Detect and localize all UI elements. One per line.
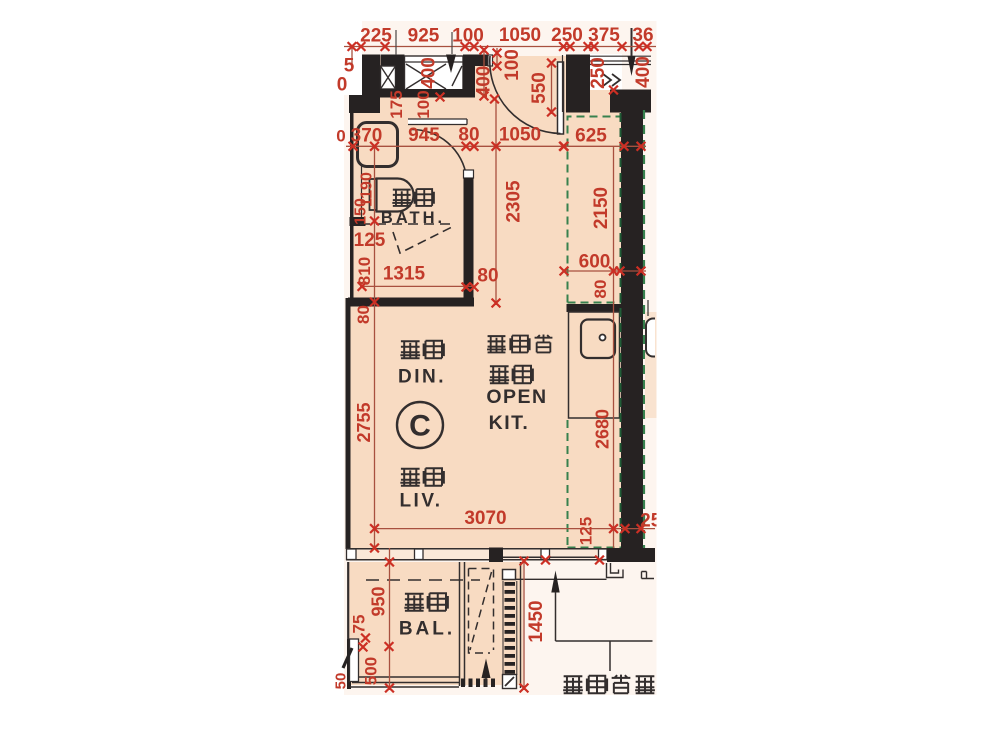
svg-text:2755: 2755 (354, 402, 374, 442)
svg-text:250: 250 (551, 25, 583, 46)
svg-text:C: C (409, 410, 431, 443)
svg-text:3070: 3070 (464, 508, 506, 529)
svg-text:75: 75 (350, 615, 369, 634)
svg-text:0: 0 (336, 127, 345, 146)
svg-text:945: 945 (408, 125, 440, 146)
svg-text:250: 250 (588, 57, 609, 89)
svg-text:BAL.: BAL. (399, 619, 455, 640)
svg-text:100: 100 (502, 49, 523, 81)
svg-text:1315: 1315 (383, 264, 426, 285)
svg-text:100: 100 (452, 26, 484, 47)
svg-text:950: 950 (369, 586, 389, 616)
svg-text:80: 80 (458, 125, 479, 146)
svg-text:2150: 2150 (591, 187, 612, 229)
svg-text:810: 810 (355, 257, 374, 285)
svg-text:80: 80 (591, 280, 610, 299)
svg-text:80: 80 (354, 305, 373, 324)
svg-text:375: 375 (588, 25, 620, 46)
svg-text:DIN.: DIN. (398, 367, 446, 388)
svg-text:600: 600 (579, 252, 611, 273)
svg-text:LIV.: LIV. (399, 491, 442, 512)
svg-text:5: 5 (344, 56, 355, 77)
svg-text:400: 400 (474, 66, 495, 98)
svg-text:2305: 2305 (504, 180, 525, 223)
svg-text:150: 150 (353, 198, 370, 225)
svg-text:2680: 2680 (593, 409, 613, 449)
svg-text:KIT.: KIT. (489, 412, 530, 434)
svg-text:400: 400 (633, 56, 654, 88)
svg-text:0: 0 (337, 75, 348, 96)
svg-text:1050: 1050 (499, 125, 541, 146)
svg-text:BATH.: BATH. (381, 209, 445, 227)
svg-text:100: 100 (414, 90, 433, 118)
svg-text:370: 370 (351, 126, 383, 147)
svg-text:OPEN: OPEN (486, 386, 547, 408)
svg-text:36: 36 (632, 25, 653, 46)
svg-text:400: 400 (419, 57, 440, 89)
svg-text:125: 125 (577, 517, 596, 545)
svg-text:225: 225 (360, 26, 392, 47)
svg-text:1450: 1450 (526, 600, 547, 642)
svg-text:1050: 1050 (499, 25, 541, 46)
svg-text:550: 550 (529, 72, 550, 104)
svg-text:50: 50 (333, 673, 350, 690)
svg-text:175: 175 (387, 90, 406, 118)
svg-text:925: 925 (408, 26, 440, 47)
svg-text:625: 625 (575, 126, 607, 147)
svg-text:500: 500 (362, 657, 381, 685)
svg-text:80: 80 (477, 266, 498, 287)
svg-text:125: 125 (354, 230, 386, 251)
